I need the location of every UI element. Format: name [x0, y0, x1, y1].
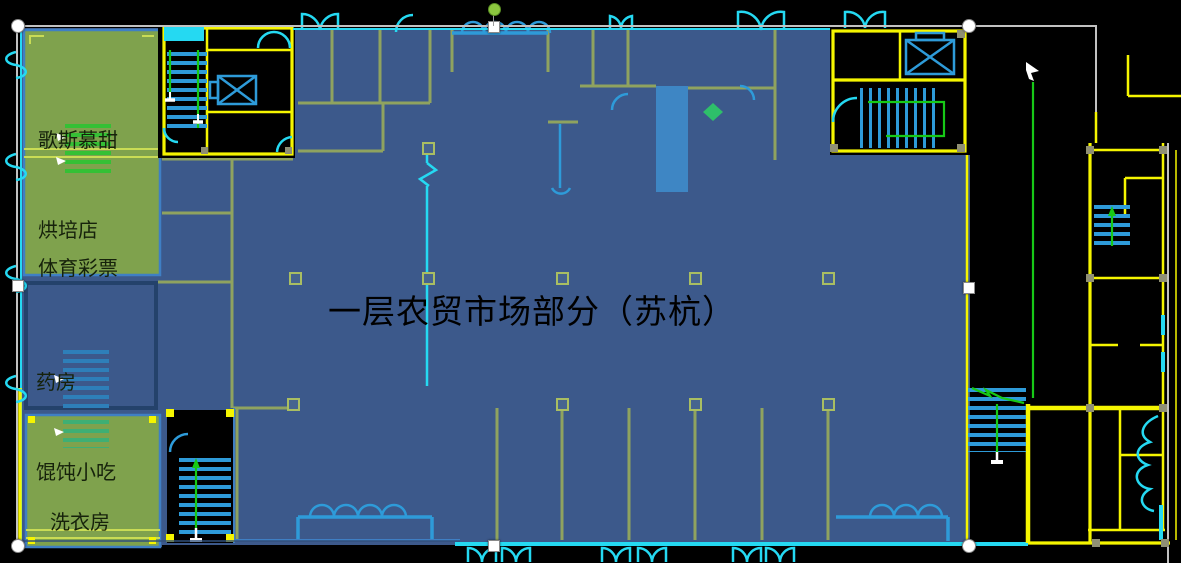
- topright-stair-elevator-block: [830, 25, 970, 155]
- page-title[interactable]: 一层农贸市场部分（苏杭）: [328, 285, 736, 333]
- selection-handle-left-center[interactable]: [12, 280, 24, 292]
- label-laundry-line1: 洗衣房: [50, 508, 110, 538]
- selection-handle-top-right[interactable]: [962, 19, 976, 33]
- slide-canvas: 歌斯慕甜 烘培店 体育彩票 药房 馄饨小吃 洗衣房 面包房 一层农贸市场部分（苏…: [0, 0, 1181, 563]
- topleft-stair-elevator-block: [158, 25, 295, 158]
- selection-handle-top-left[interactable]: [11, 19, 25, 33]
- right-wing-building: [968, 26, 1181, 563]
- selection-handle-bottom-right[interactable]: [962, 539, 976, 553]
- label-laundry-bread[interactable]: 洗衣房 面包房: [50, 448, 110, 563]
- door-swing-symbols-bottom: [468, 548, 794, 562]
- right-edge-stair: [972, 388, 1024, 462]
- cad-floorplan-drawing: [0, 0, 1181, 563]
- selection-handle-bottom-left[interactable]: [11, 539, 25, 553]
- selection-handle-right-center[interactable]: [963, 282, 975, 294]
- selection-handle-bottom-center[interactable]: [488, 540, 500, 552]
- bottomleft-stair-block: [166, 408, 234, 543]
- label-bakery-line1: 歌斯慕甜: [38, 126, 118, 156]
- label-pharmacy-line1: 药房: [36, 368, 116, 398]
- label-sports-lottery[interactable]: 体育彩票: [38, 194, 118, 314]
- label-lottery-line1: 体育彩票: [38, 254, 118, 284]
- corridor-direction-line: [1026, 62, 1039, 398]
- selection-handle-top-center[interactable]: [488, 21, 500, 33]
- rotation-handle[interactable]: [488, 3, 501, 16]
